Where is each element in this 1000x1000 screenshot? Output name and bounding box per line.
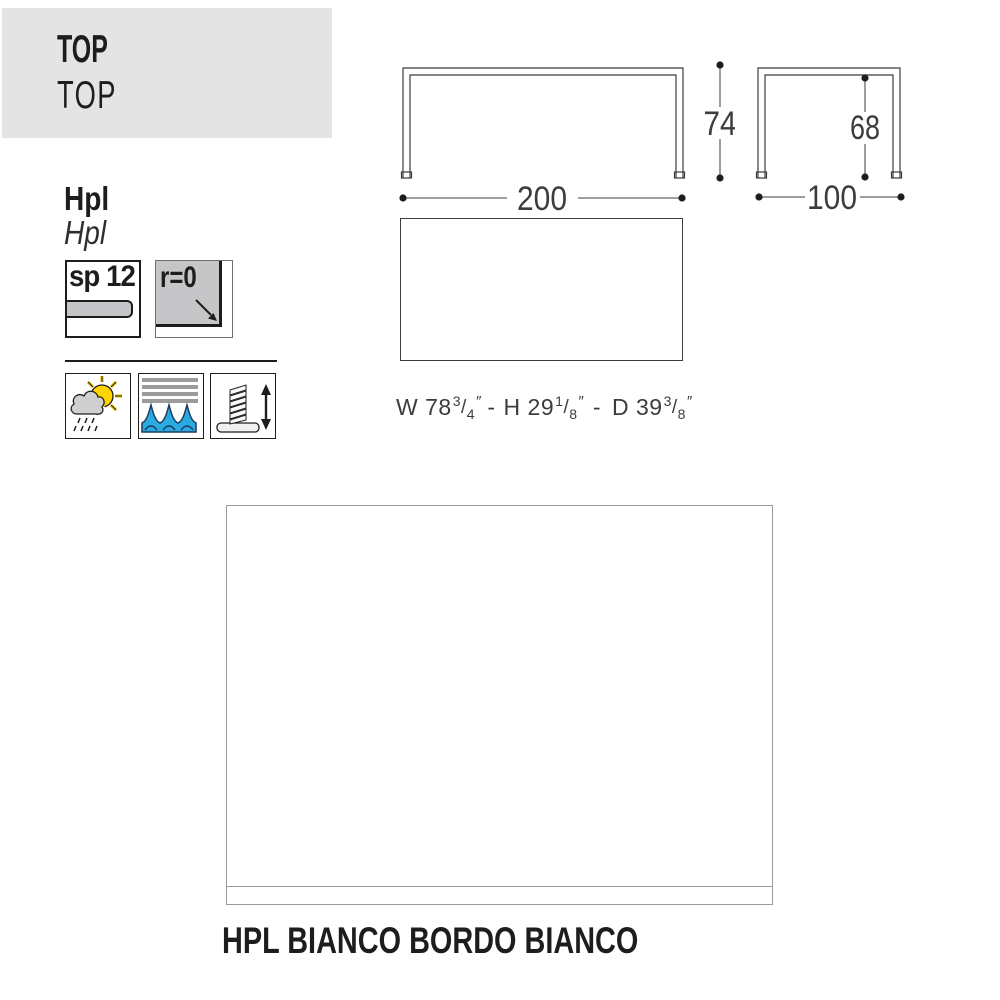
front-height-dimension: 74 xyxy=(704,105,736,143)
thickness-label: sp 12 xyxy=(69,260,135,294)
swatch-edge-line xyxy=(227,886,772,887)
dimension-lines xyxy=(403,65,720,198)
table-front-view-drawing: 74 200 xyxy=(395,55,735,220)
page-title-translation: TOP xyxy=(57,74,117,118)
swatch-caption: HPL BIANCO BORDO BIANCO xyxy=(222,920,638,962)
table-front-outline xyxy=(402,68,685,178)
side-height-dimension: 68 xyxy=(850,109,880,147)
side-width-dimension: 100 xyxy=(807,179,857,217)
table-side-view-drawing: 68 100 xyxy=(750,55,920,220)
width-imperial: W 78 xyxy=(396,394,452,420)
feature-box-adjustable-feet xyxy=(210,373,276,439)
height-imperial: H 29 xyxy=(504,394,555,420)
feature-box-water xyxy=(138,373,204,439)
rain-drops xyxy=(74,418,97,431)
page-title: TOP xyxy=(57,28,108,72)
material-name-translation: Hpl xyxy=(64,214,106,252)
material-swatch xyxy=(226,505,773,905)
fabric-stripes xyxy=(142,378,198,403)
weather-resistant-icon xyxy=(66,374,128,436)
front-width-dimension: 200 xyxy=(517,180,567,218)
imperial-dimensions: W 783/4″-H 291/8″-D 393/8″ xyxy=(396,394,690,421)
material-name: Hpl xyxy=(64,180,109,218)
corner-radius-arrow-icon xyxy=(156,261,232,337)
screw-thread xyxy=(230,385,246,424)
adjustable-feet-icon xyxy=(211,374,273,436)
thickness-spec-box: sp 12 xyxy=(65,260,141,338)
table-top-view-drawing xyxy=(400,218,683,361)
spec-sheet-page: TOP TOP Hpl Hpl sp 12 r=0 xyxy=(0,0,1000,1000)
header-box: TOP TOP xyxy=(2,8,332,138)
edge-radius-spec-box: r=0 xyxy=(155,260,233,338)
feature-box-weather xyxy=(65,373,131,439)
panel-thickness-bar-icon xyxy=(67,300,133,318)
foot-base xyxy=(217,423,259,432)
depth-imperial: D 39 xyxy=(612,394,663,420)
height-arrow xyxy=(261,384,271,430)
water-resistant-icon xyxy=(139,374,201,436)
waves xyxy=(142,405,196,432)
divider-line xyxy=(65,360,277,362)
